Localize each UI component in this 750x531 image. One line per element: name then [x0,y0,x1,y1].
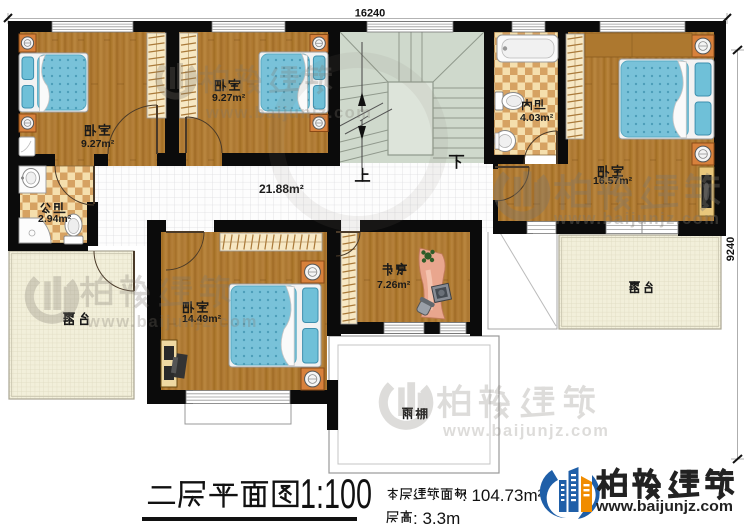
svg-text:www.baijunjz.com: www.baijunjz.com [553,210,720,228]
svg-text:: 104.73m²: : 104.73m² [462,486,544,505]
svg-text:4.03m²: 4.03m² [520,112,554,124]
svg-text:: 3.3m: : 3.3m [413,509,460,528]
svg-text:www.baijunjz.com: www.baijunjz.com [442,422,609,440]
svg-text:9240: 9240 [725,237,737,261]
svg-text:www.baijunjz.com: www.baijunjz.com [595,498,733,515]
svg-text:2.94m²: 2.94m² [38,213,72,225]
svg-text:9.27m²: 9.27m² [81,138,115,150]
svg-text:16240: 16240 [355,8,386,20]
svg-text:7.26m²: 7.26m² [377,279,411,291]
svg-text:1:100: 1:100 [300,470,372,517]
svg-text:9.27m²: 9.27m² [212,92,246,104]
svg-text:www.baijunjz.com: www.baijunjz.com [86,313,258,331]
